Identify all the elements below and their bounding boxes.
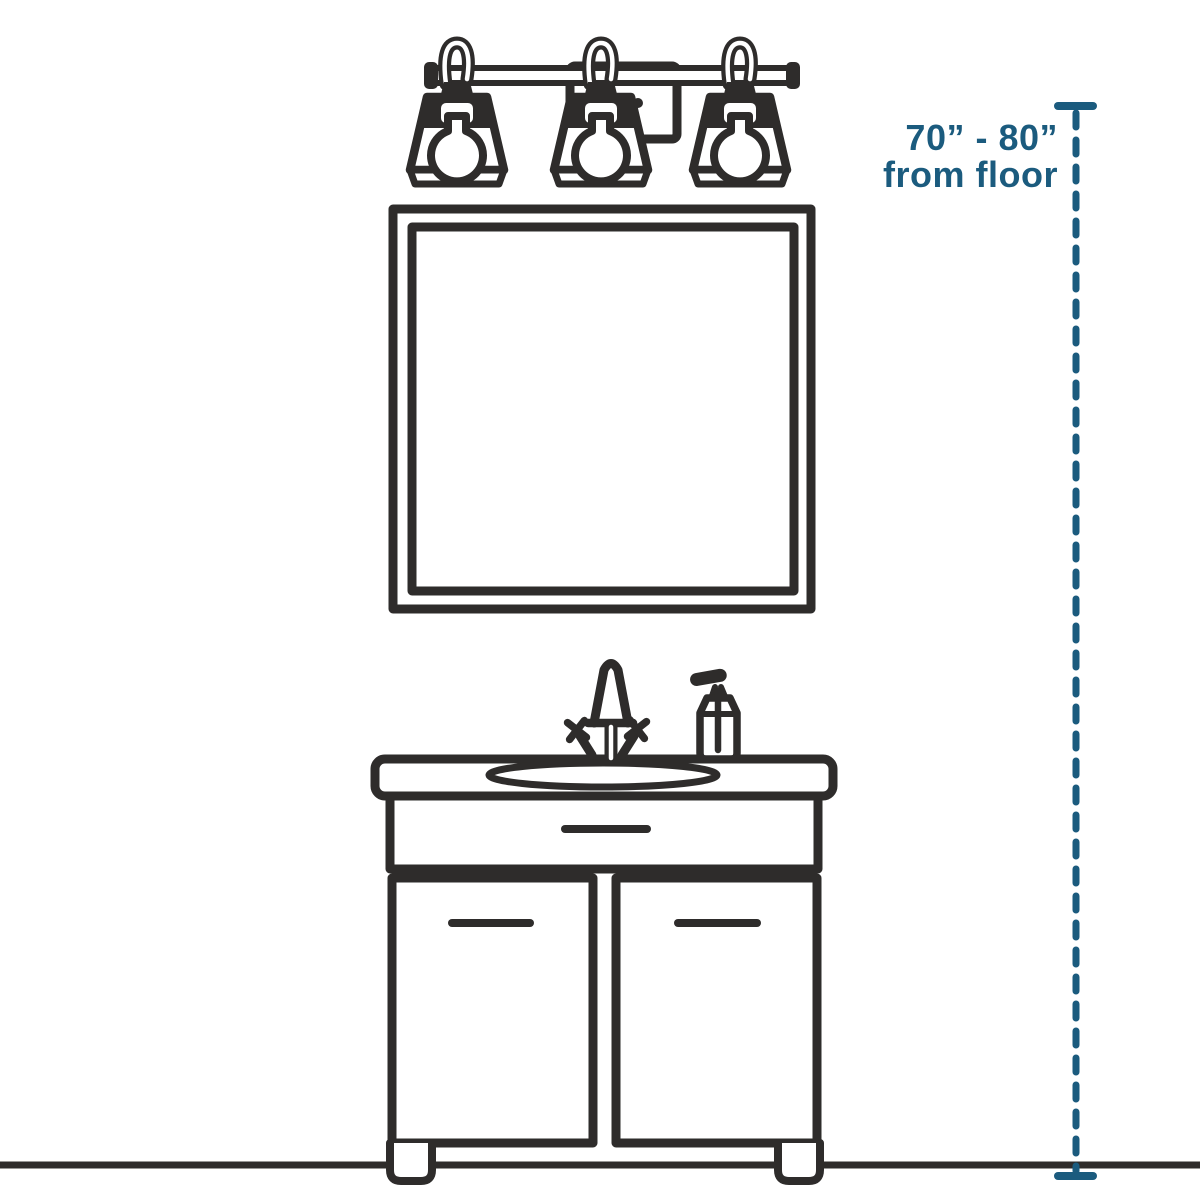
foot-right (778, 1143, 820, 1181)
lamp-left (410, 43, 504, 184)
mirror (393, 209, 811, 609)
soap-dispenser (689, 668, 737, 759)
measurement-reference-text: from floor (883, 156, 1058, 193)
measurement-label: 70” - 80” from floor (883, 119, 1058, 193)
measurement-line (1058, 106, 1093, 1176)
soap-pump-head (689, 668, 728, 687)
foot-left (390, 1143, 432, 1181)
diagram-canvas: 70” - 80” from floor (0, 0, 1200, 1200)
faucet (560, 664, 654, 761)
door-right (616, 878, 817, 1143)
fixture-bar-right-cap (786, 62, 800, 89)
measurement-range-text: 70” - 80” (883, 119, 1058, 156)
sink-basin (489, 763, 717, 787)
faucet-spout (594, 664, 628, 724)
door-left (392, 878, 593, 1143)
vanity-cabinet (375, 759, 833, 1181)
fixture-bar-left-cap (424, 62, 438, 89)
mirror-outer-frame (393, 209, 811, 609)
light-fixture (410, 43, 800, 184)
lamp-right (693, 43, 787, 184)
